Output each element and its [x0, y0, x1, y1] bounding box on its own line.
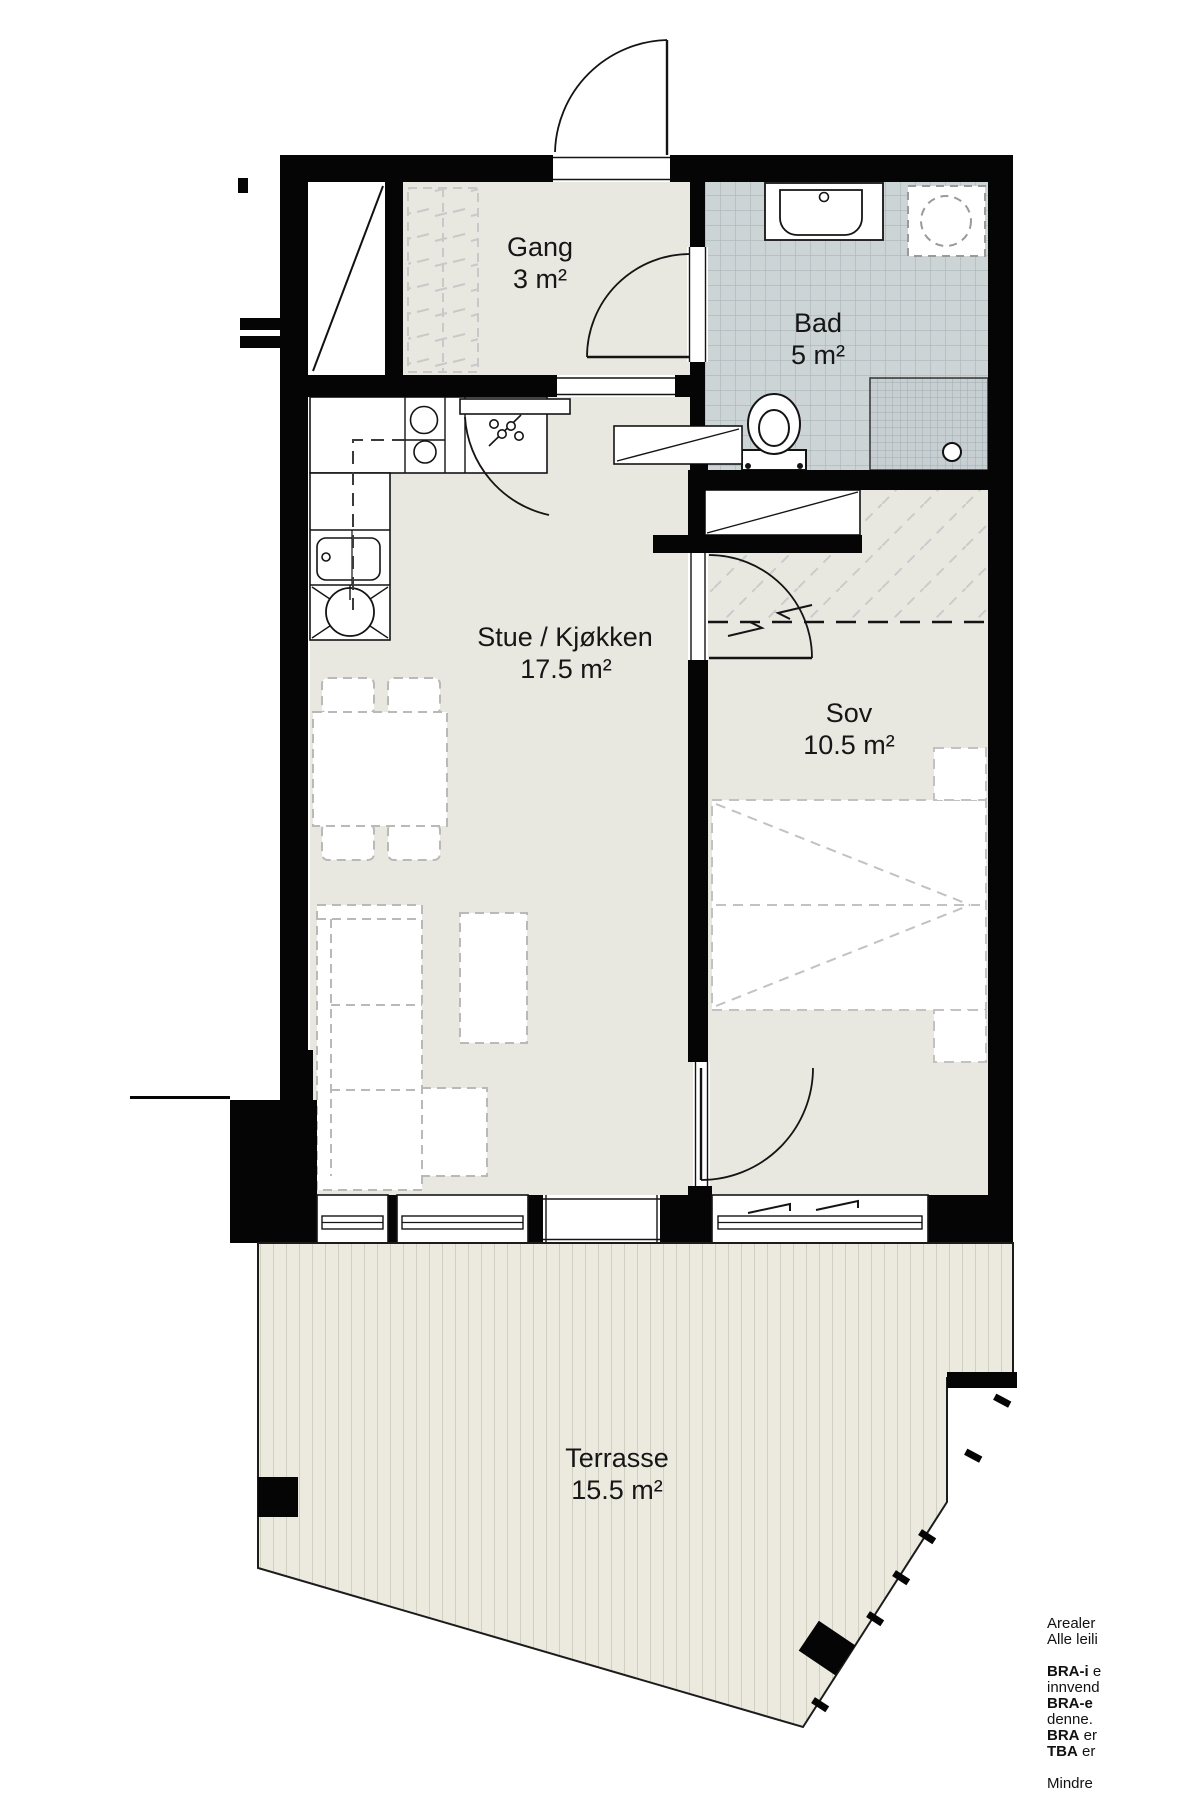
cooktop-burner-icon	[414, 441, 436, 463]
room-label-bad: Bad	[794, 308, 842, 338]
dining-table	[313, 712, 447, 826]
terrace-post	[258, 1477, 298, 1517]
room-area-terrasse: 15.5 m²	[571, 1475, 663, 1505]
window-living-1	[317, 1195, 388, 1243]
sofa-chaise	[422, 1088, 487, 1176]
room-area-sov: 10.5 m²	[803, 730, 895, 760]
technical-shaft	[310, 182, 385, 375]
coffee-table	[460, 913, 527, 1043]
neighbour-wall-tick	[240, 336, 282, 348]
room-label-sov: Sov	[826, 698, 873, 728]
chair	[388, 678, 440, 714]
neighbour-wall-tick	[238, 178, 248, 193]
neighbour-wall-tick	[240, 318, 282, 330]
legend: ArealerAlle leili BRA-i einnvendBRA-e de…	[1047, 1616, 1200, 1792]
cooktop-burner-icon	[411, 407, 438, 434]
room-label-stue: Stue / Kjøkken	[477, 622, 653, 652]
floor-plan-svg: Gang 3 m² Bad 5 m² Stue / Kjøkken 17.5 m…	[0, 0, 1200, 1800]
kitchen-sink	[317, 530, 380, 585]
window-bedroom	[712, 1195, 928, 1243]
room-label-terrasse: Terrasse	[565, 1443, 669, 1473]
shower-drain-icon	[943, 443, 961, 461]
terrace-wall-segment	[947, 1372, 1017, 1388]
neighbour-boundary-line	[130, 1096, 230, 1099]
bathroom-sink	[765, 183, 883, 240]
floor-plan-page: Gang 3 m² Bad 5 m² Stue / Kjøkken 17.5 m…	[0, 0, 1200, 1800]
chair	[322, 824, 374, 860]
hall-closet	[614, 426, 742, 464]
duct-niche	[705, 490, 860, 535]
chair	[388, 824, 440, 860]
hall-wardrobe	[408, 188, 478, 372]
room-label-gang: Gang	[507, 232, 573, 262]
room-area-stue: 17.5 m²	[520, 654, 612, 684]
room-area-bad: 5 m²	[791, 340, 845, 370]
entrance-door	[553, 40, 670, 182]
nightstand	[934, 1010, 986, 1062]
shower-area	[870, 378, 988, 470]
room-area-gang: 3 m²	[513, 264, 567, 294]
chair	[322, 678, 374, 714]
washing-machine-icon	[908, 186, 985, 256]
window-living-2	[397, 1195, 528, 1243]
nightstand	[934, 748, 986, 800]
